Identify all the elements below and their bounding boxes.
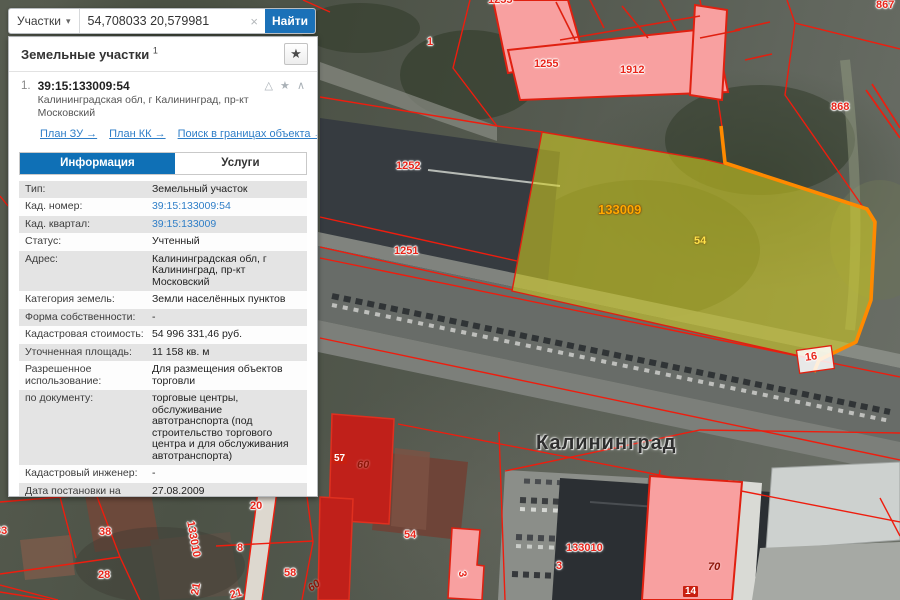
row-label: Уточненная площадь: xyxy=(25,346,152,360)
cadastral-number-link[interactable]: 39:15:133009:54 xyxy=(152,200,301,214)
row-value: Земли населённых пунктов xyxy=(152,293,301,307)
item-links: План ЗУ → План КК → Поиск в границах объ… xyxy=(40,128,305,140)
row-value: Калининградская обл, г Калининград, пр-к… xyxy=(152,253,301,290)
row-label: Кадастровый инженер: xyxy=(25,467,152,481)
row-label: Категория земель: xyxy=(25,293,152,307)
tab-services[interactable]: Услуги xyxy=(175,153,306,174)
chevron-down-icon: ▾ xyxy=(66,16,71,27)
row-label: Кад. квартал: xyxy=(25,218,152,232)
search-category-dropdown[interactable]: Участки ▾ xyxy=(9,9,80,33)
row-value: 27.08.2009 xyxy=(152,485,301,497)
table-row: Категория земель:Земли населённых пункто… xyxy=(19,291,307,309)
cadastral-number: 39:15:133009:54 xyxy=(38,79,253,93)
search-bar: Участки ▾ 54,708033 20,579981 × Найти xyxy=(8,8,316,34)
pink-building-small xyxy=(448,528,484,600)
row-label: по документу: xyxy=(25,392,152,463)
search-button[interactable]: Найти xyxy=(265,9,315,33)
search-input[interactable]: 54,708033 20,579981 xyxy=(80,9,244,33)
link-plan-zu[interactable]: План ЗУ → xyxy=(40,128,97,140)
tab-information[interactable]: Информация xyxy=(20,153,175,174)
row-label: Кадастровая стоимость: xyxy=(25,328,152,342)
table-row: Статус:Учтенный xyxy=(19,233,307,251)
results-panel: Земельные участки 1 ★ △ ★ ∧ 1. 39:15:133… xyxy=(8,36,318,497)
collapse-icon[interactable]: ∧ xyxy=(297,80,307,92)
row-value: - xyxy=(152,467,301,481)
row-label: Разрешенное использование: xyxy=(25,363,152,388)
table-row: Разрешенное использование:Для размещения… xyxy=(19,361,307,390)
row-label: Кад. номер: xyxy=(25,200,152,214)
item-index: 1. xyxy=(21,79,31,120)
cadastral-quarter-link[interactable]: 39:15:133009 xyxy=(152,218,301,232)
row-value: 54 996 331,46 руб. xyxy=(152,328,301,342)
table-row: Кад. квартал:39:15:133009 xyxy=(19,216,307,234)
parcel-list-item: △ ★ ∧ 1. 39:15:133009:54 Калининградская… xyxy=(9,72,317,145)
item-actions: △ ★ ∧ xyxy=(264,79,307,92)
clear-search-icon[interactable]: × xyxy=(243,9,265,33)
table-row: Кадастровая стоимость:54 996 331,46 руб. xyxy=(19,326,307,344)
table-row: Тип:Земельный участок xyxy=(19,181,307,199)
table-row: Кад. номер:39:15:133009:54 xyxy=(19,198,307,216)
parcel-16-box xyxy=(796,346,834,374)
row-label: Форма собственности: xyxy=(25,311,152,325)
table-row: по документу:торговые центры, обслуживан… xyxy=(19,390,307,465)
row-label: Статус: xyxy=(25,235,152,249)
row-value: Учтенный xyxy=(152,235,301,249)
row-value: Для размещения объектов торговли xyxy=(152,363,301,388)
table-row: Дата постановки на учет:27.08.2009 xyxy=(19,483,307,497)
table-row: Уточненная площадь:11 158 кв. м xyxy=(19,344,307,362)
residential-buildings xyxy=(493,0,728,100)
favorites-button[interactable]: ★ xyxy=(284,43,308,65)
row-label: Адрес: xyxy=(25,253,152,290)
row-value: торговые центры, обслуживание автотрансп… xyxy=(152,392,301,463)
star-icon[interactable]: ★ xyxy=(280,80,292,92)
pink-building-70 xyxy=(642,476,742,600)
table-row: Форма собственности:- xyxy=(19,309,307,327)
row-label: Дата постановки на учет: xyxy=(25,485,152,497)
warning-icon[interactable]: △ xyxy=(264,80,274,92)
parcel-address: Калининградская обл, г Калининград, пр-к… xyxy=(38,94,253,120)
link-plan-kk[interactable]: План КК → xyxy=(109,128,165,140)
link-search-in-bounds[interactable]: Поиск в границах объекта → xyxy=(178,128,318,140)
row-value: 11 158 кв. м xyxy=(152,346,301,360)
search-category-label: Участки xyxy=(17,14,61,28)
row-value: Земельный участок xyxy=(152,183,301,197)
table-row: Адрес:Калининградская обл, г Калининград… xyxy=(19,251,307,292)
info-tabs: Информация Услуги xyxy=(19,152,307,175)
row-label: Тип: xyxy=(25,183,152,197)
search-input-value: 54,708033 20,579981 xyxy=(88,14,210,28)
result-count: 1 xyxy=(153,46,158,56)
parcel-info-table: Тип:Земельный участок Кад. номер:39:15:1… xyxy=(19,181,307,497)
app-window: 1255 1912 868 867 1 1252 1251 133009 54 … xyxy=(0,0,900,600)
panel-header: Земельные участки 1 ★ xyxy=(9,37,317,72)
table-row: Кадастровый инженер:- xyxy=(19,465,307,483)
star-icon: ★ xyxy=(290,46,302,62)
white-building xyxy=(766,462,900,550)
panel-title: Земельные участки 1 xyxy=(21,47,158,62)
row-value: - xyxy=(152,311,301,325)
